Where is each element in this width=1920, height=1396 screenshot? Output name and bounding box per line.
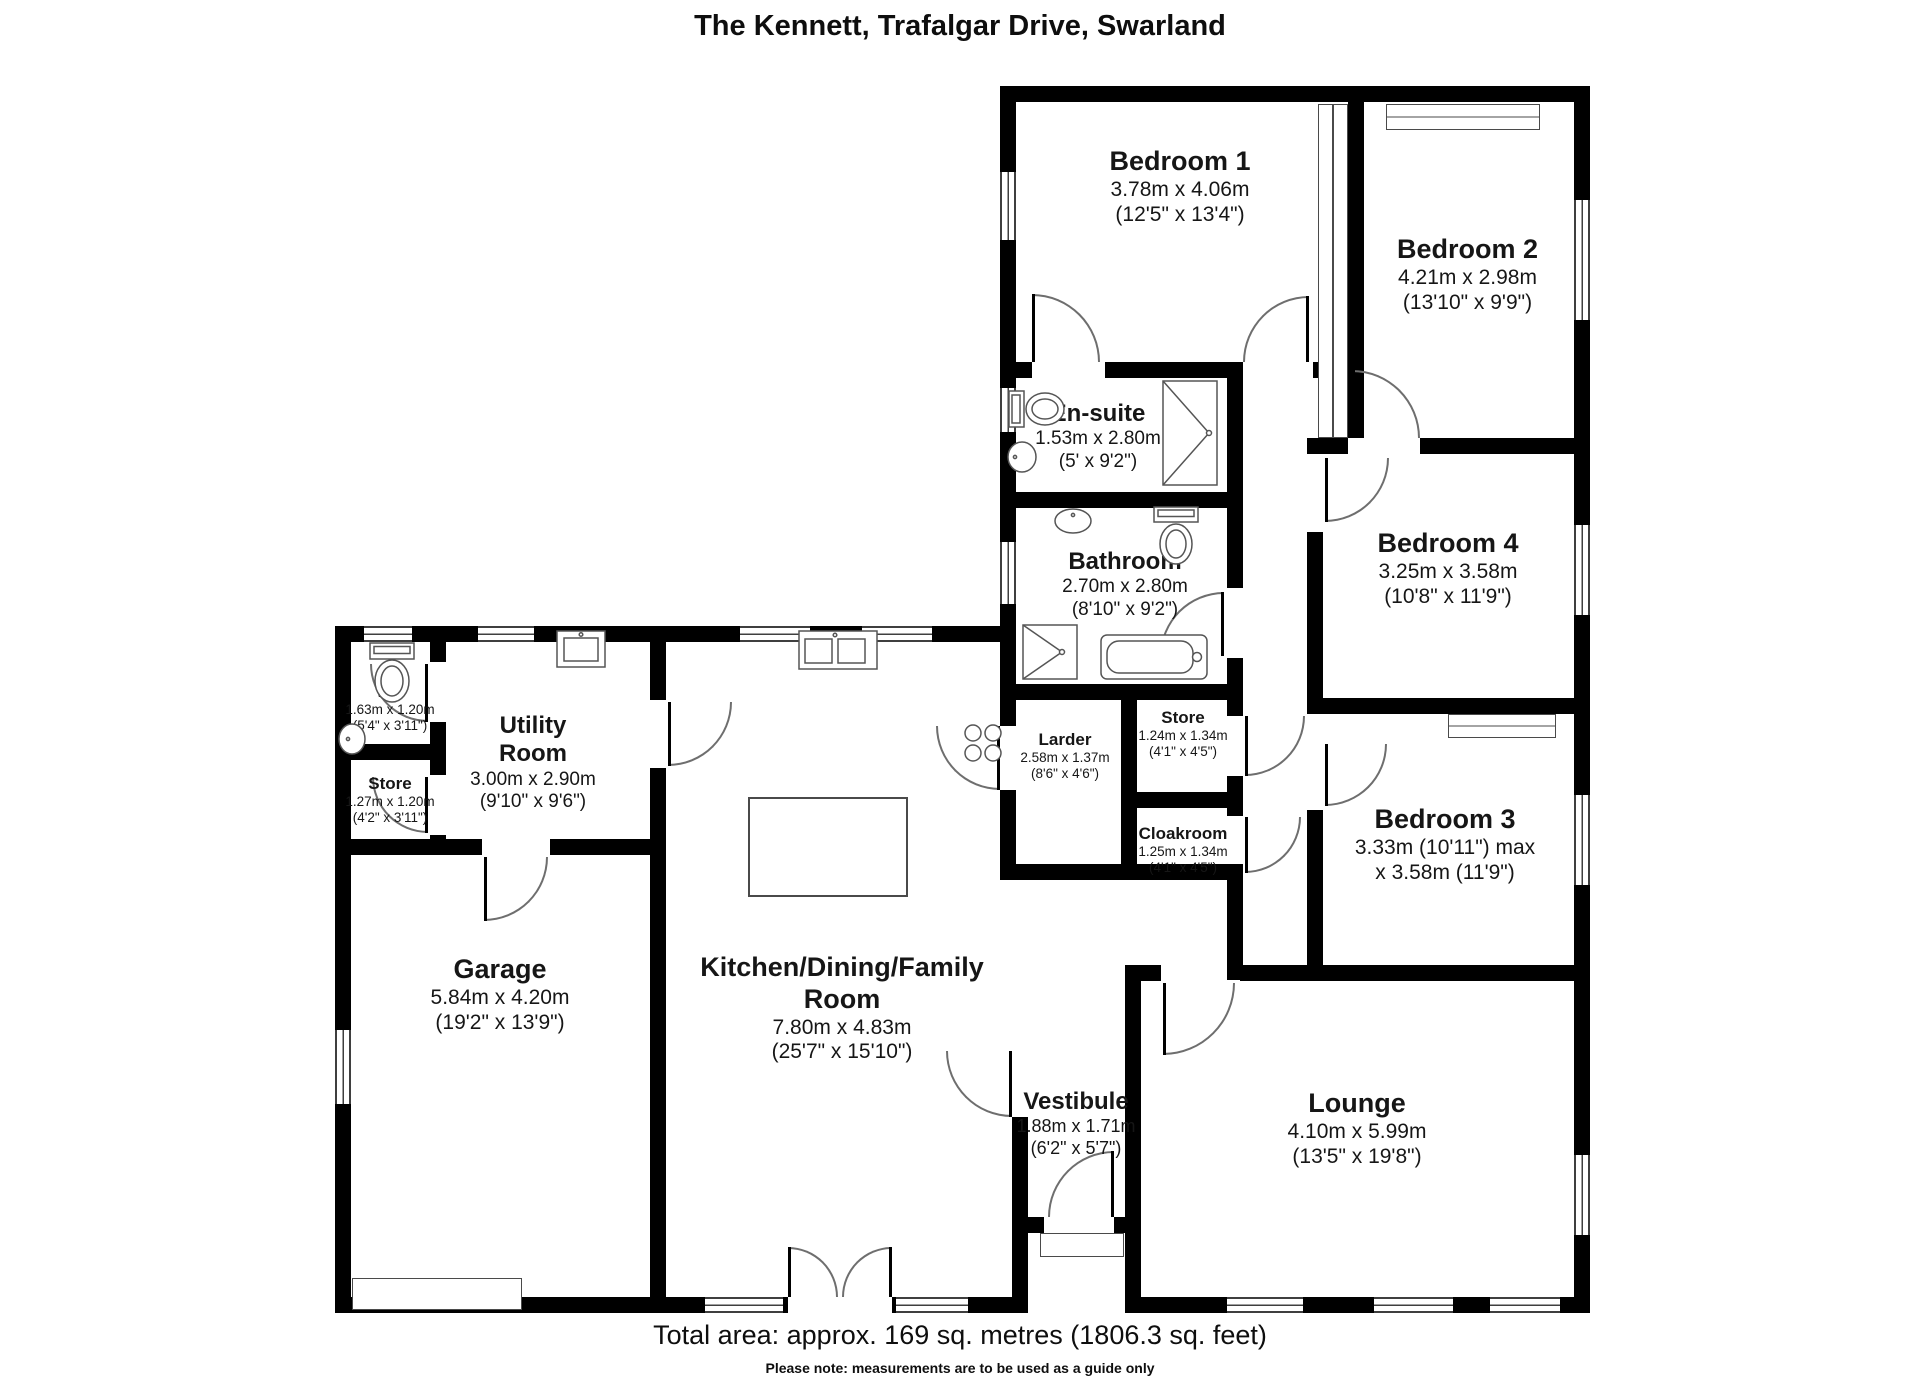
wall xyxy=(1012,1217,1028,1313)
window xyxy=(896,1297,968,1313)
wall xyxy=(1141,965,1161,981)
wall xyxy=(650,642,666,700)
door-swing-arc xyxy=(1243,296,1309,362)
room-dims-imperial: (4'2" x 3'11") xyxy=(337,810,443,826)
door-leaf xyxy=(1325,744,1328,806)
wall-opening xyxy=(788,1297,892,1313)
room-dims-metric: 4.10m x 5.99m xyxy=(1237,1120,1477,1145)
sink-fixture xyxy=(1006,440,1042,474)
door-swing-arc xyxy=(1245,817,1301,873)
wall xyxy=(1227,873,1243,980)
entrance-step xyxy=(352,1278,522,1310)
wall xyxy=(430,642,446,662)
room-dims-imperial: (13'5" x 19'8") xyxy=(1237,1145,1477,1170)
door-leaf xyxy=(1245,817,1248,873)
wall xyxy=(1016,492,1243,508)
built-in-wardrobe xyxy=(1448,714,1556,738)
room-dims-metric: 2.70m x 2.80m xyxy=(1020,576,1230,598)
door-swing-arc xyxy=(668,702,732,766)
wall xyxy=(1000,642,1016,726)
room-name: Bedroom 3 xyxy=(1310,804,1580,836)
wall xyxy=(1137,792,1227,808)
room-dims-metric: 3.25m x 3.58m xyxy=(1328,560,1568,585)
room-name: Bedroom 1 xyxy=(1040,146,1320,178)
shower-fixture xyxy=(1162,380,1218,486)
room-dims-imperial: (8'10" x 9'2") xyxy=(1020,599,1230,621)
room-dims-imperial: (9'10" x 9'6") xyxy=(463,791,603,813)
room-dims-imperial: (4'1" x 4'5") xyxy=(1133,744,1233,760)
room-dims-metric: 3.00m x 2.90m xyxy=(463,769,603,791)
room-label-vestibule: Vestibule 1.88m x 1.71m (6'2" x 5'7") xyxy=(1011,1088,1141,1159)
wall xyxy=(1000,362,1032,378)
built-in-wardrobe xyxy=(1386,104,1540,130)
door-leaf xyxy=(1111,1151,1114,1217)
room-dims-metric: 3.78m x 4.06m xyxy=(1040,178,1320,203)
room-name: Lounge xyxy=(1237,1088,1477,1120)
window xyxy=(1490,1297,1560,1313)
room-dims-metric: 1.63m x 1.20m xyxy=(337,702,443,718)
room-name: Vestibule xyxy=(1011,1088,1141,1116)
room-name: Store xyxy=(1133,708,1233,728)
room-label-store-1: Store 1.27m x 1.20m (4'2" x 3'11") xyxy=(337,774,443,826)
door-leaf xyxy=(788,1247,791,1297)
room-dims-metric: 4.21m x 2.98m xyxy=(1360,266,1575,291)
kitchen-sink-fixture xyxy=(798,630,878,670)
window xyxy=(1000,172,1016,240)
room-name: Kitchen/Dining/Family Room xyxy=(682,952,1002,1016)
door-swing-arc xyxy=(1325,458,1389,522)
room-label-bedroom-1: Bedroom 1 3.78m x 4.06m (12'5" x 13'4") xyxy=(1040,146,1320,227)
door-swing-arc xyxy=(1245,716,1305,776)
room-label-bedroom-3: Bedroom 3 3.33m (10'11") max x 3.58m (11… xyxy=(1310,804,1580,885)
entrance-step xyxy=(1040,1233,1124,1257)
room-dims-metric: 7.80m x 4.83m xyxy=(682,1016,1002,1041)
sink-fixture xyxy=(1052,508,1094,536)
disclaimer-note: Please note: measurements are to be used… xyxy=(0,1360,1920,1376)
room-dims-imperial: (6'2" x 5'7") xyxy=(1011,1138,1141,1159)
wall-opening xyxy=(1044,1217,1114,1233)
door-swing-arc xyxy=(1032,294,1100,362)
floor-plan: The Kennett, Trafalgar Drive, Swarland B… xyxy=(0,0,1920,1396)
room-label-bedroom-4: Bedroom 4 3.25m x 3.58m (10'8" x 11'9") xyxy=(1328,528,1568,609)
room-label-utility-room: Utility Room 3.00m x 2.90m (9'10" x 9'6"… xyxy=(463,712,603,813)
room-label-kitchen-dining-family-room: Kitchen/Dining/Family Room 7.80m x 4.83m… xyxy=(682,952,1002,1065)
room-label-cloakroom: Cloakroom 1.25m x 1.34m (4'1" x 4'5") xyxy=(1128,824,1238,876)
window xyxy=(1574,200,1590,320)
room-dims-imperial: (8'6" x 4'6") xyxy=(1014,766,1116,782)
page-title: The Kennett, Trafalgar Drive, Swarland xyxy=(0,10,1920,43)
door-leaf xyxy=(1032,294,1035,362)
door-leaf xyxy=(1325,458,1328,522)
door-swing-arc xyxy=(1325,744,1387,806)
room-label-bedroom-2: Bedroom 2 4.21m x 2.98m (13'10" x 9'9") xyxy=(1360,234,1575,315)
room-dims-imperial: (12'5" x 13'4") xyxy=(1040,203,1320,228)
wall xyxy=(650,768,666,855)
room-name: Larder xyxy=(1014,730,1116,750)
window xyxy=(364,626,412,642)
window xyxy=(1374,1297,1453,1313)
room-label-garage: Garage 5.84m x 4.20m (19'2" x 13'9") xyxy=(370,954,630,1035)
door-leaf xyxy=(1352,370,1355,438)
wall xyxy=(1307,698,1574,714)
room-name: Bedroom 4 xyxy=(1328,528,1568,560)
door-swing-arc xyxy=(1352,370,1420,438)
shower-fixture xyxy=(1022,624,1078,680)
window xyxy=(1574,525,1590,615)
window xyxy=(705,1297,783,1313)
room-label-larder: Larder 2.58m x 1.37m (8'6" x 4'6") xyxy=(1014,730,1116,782)
room-name: Cloakroom xyxy=(1128,824,1238,844)
room-label-store-2: Store 1.24m x 1.34m (4'1" x 4'5") xyxy=(1133,708,1233,760)
door-swing-arc xyxy=(1163,983,1235,1055)
room-dims-metric: 5.84m x 4.20m xyxy=(370,986,630,1011)
wall xyxy=(1307,532,1323,698)
door-swing-arc xyxy=(788,1247,838,1297)
wall xyxy=(335,839,482,855)
room-dims-metric: 2.58m x 1.37m xyxy=(1014,750,1116,766)
wall xyxy=(1227,776,1243,816)
built-in-wardrobe xyxy=(1318,104,1348,438)
cooktop-fixture xyxy=(960,720,1006,766)
door-leaf xyxy=(889,1247,892,1297)
room-name: Utility Room xyxy=(463,712,603,769)
room-dims-imperial: (10'8" x 11'9") xyxy=(1328,585,1568,610)
wall xyxy=(1240,965,1574,981)
door-leaf xyxy=(1306,296,1309,362)
room-dims-imperial: (25'7" x 15'10") xyxy=(682,1040,1002,1065)
room-dims-metric: 1.24m x 1.34m xyxy=(1133,728,1233,744)
room-dims-metric: 3.33m (10'11") max xyxy=(1310,836,1580,861)
room-dims-imperial: x 3.58m (11'9") xyxy=(1310,861,1580,886)
sink-fixture xyxy=(338,722,374,756)
toilet-fixture xyxy=(1008,386,1068,432)
room-dims-metric: 1.27m x 1.20m xyxy=(337,794,443,810)
door-leaf xyxy=(1245,716,1248,776)
wall xyxy=(550,839,666,855)
door-swing-arc xyxy=(1048,1151,1114,1217)
wall xyxy=(1307,438,1348,454)
room-name: Store xyxy=(337,774,443,794)
window xyxy=(335,1030,351,1104)
wall xyxy=(1420,438,1574,454)
room-name: Bedroom 2 xyxy=(1360,234,1575,266)
bathtub-fixture xyxy=(1100,634,1208,680)
room-dims-imperial: (13'10" x 9'9") xyxy=(1360,291,1575,316)
room-name: Garage xyxy=(370,954,630,986)
toilet-fixture xyxy=(1150,506,1202,566)
window xyxy=(1574,1155,1590,1235)
wall xyxy=(1000,790,1016,880)
wall xyxy=(650,855,666,1313)
room-dims-metric: 1.25m x 1.34m xyxy=(1128,844,1238,860)
room-dims-imperial: (19'2" x 13'9") xyxy=(370,1011,630,1036)
toilet-fixture xyxy=(366,642,418,704)
total-area-text: Total area: approx. 169 sq. metres (1806… xyxy=(0,1320,1920,1351)
utility-sink-fixture xyxy=(556,630,606,668)
room-dims-imperial: (4'1" x 4'5") xyxy=(1128,860,1238,876)
wall xyxy=(1000,86,1590,102)
window xyxy=(1227,1297,1303,1313)
window xyxy=(1000,542,1016,604)
door-leaf xyxy=(484,857,487,921)
door-swing-arc xyxy=(484,857,548,921)
door-leaf xyxy=(1163,983,1166,1055)
door-leaf xyxy=(668,702,671,766)
kitchen-island xyxy=(748,797,908,897)
room-dims-metric: 1.88m x 1.71m xyxy=(1011,1116,1141,1137)
room-label-lounge: Lounge 4.10m x 5.99m (13'5" x 19'8") xyxy=(1237,1088,1477,1169)
window xyxy=(478,626,534,642)
wall xyxy=(1105,362,1243,378)
door-swing-arc xyxy=(842,1247,892,1297)
wall xyxy=(1016,684,1243,700)
